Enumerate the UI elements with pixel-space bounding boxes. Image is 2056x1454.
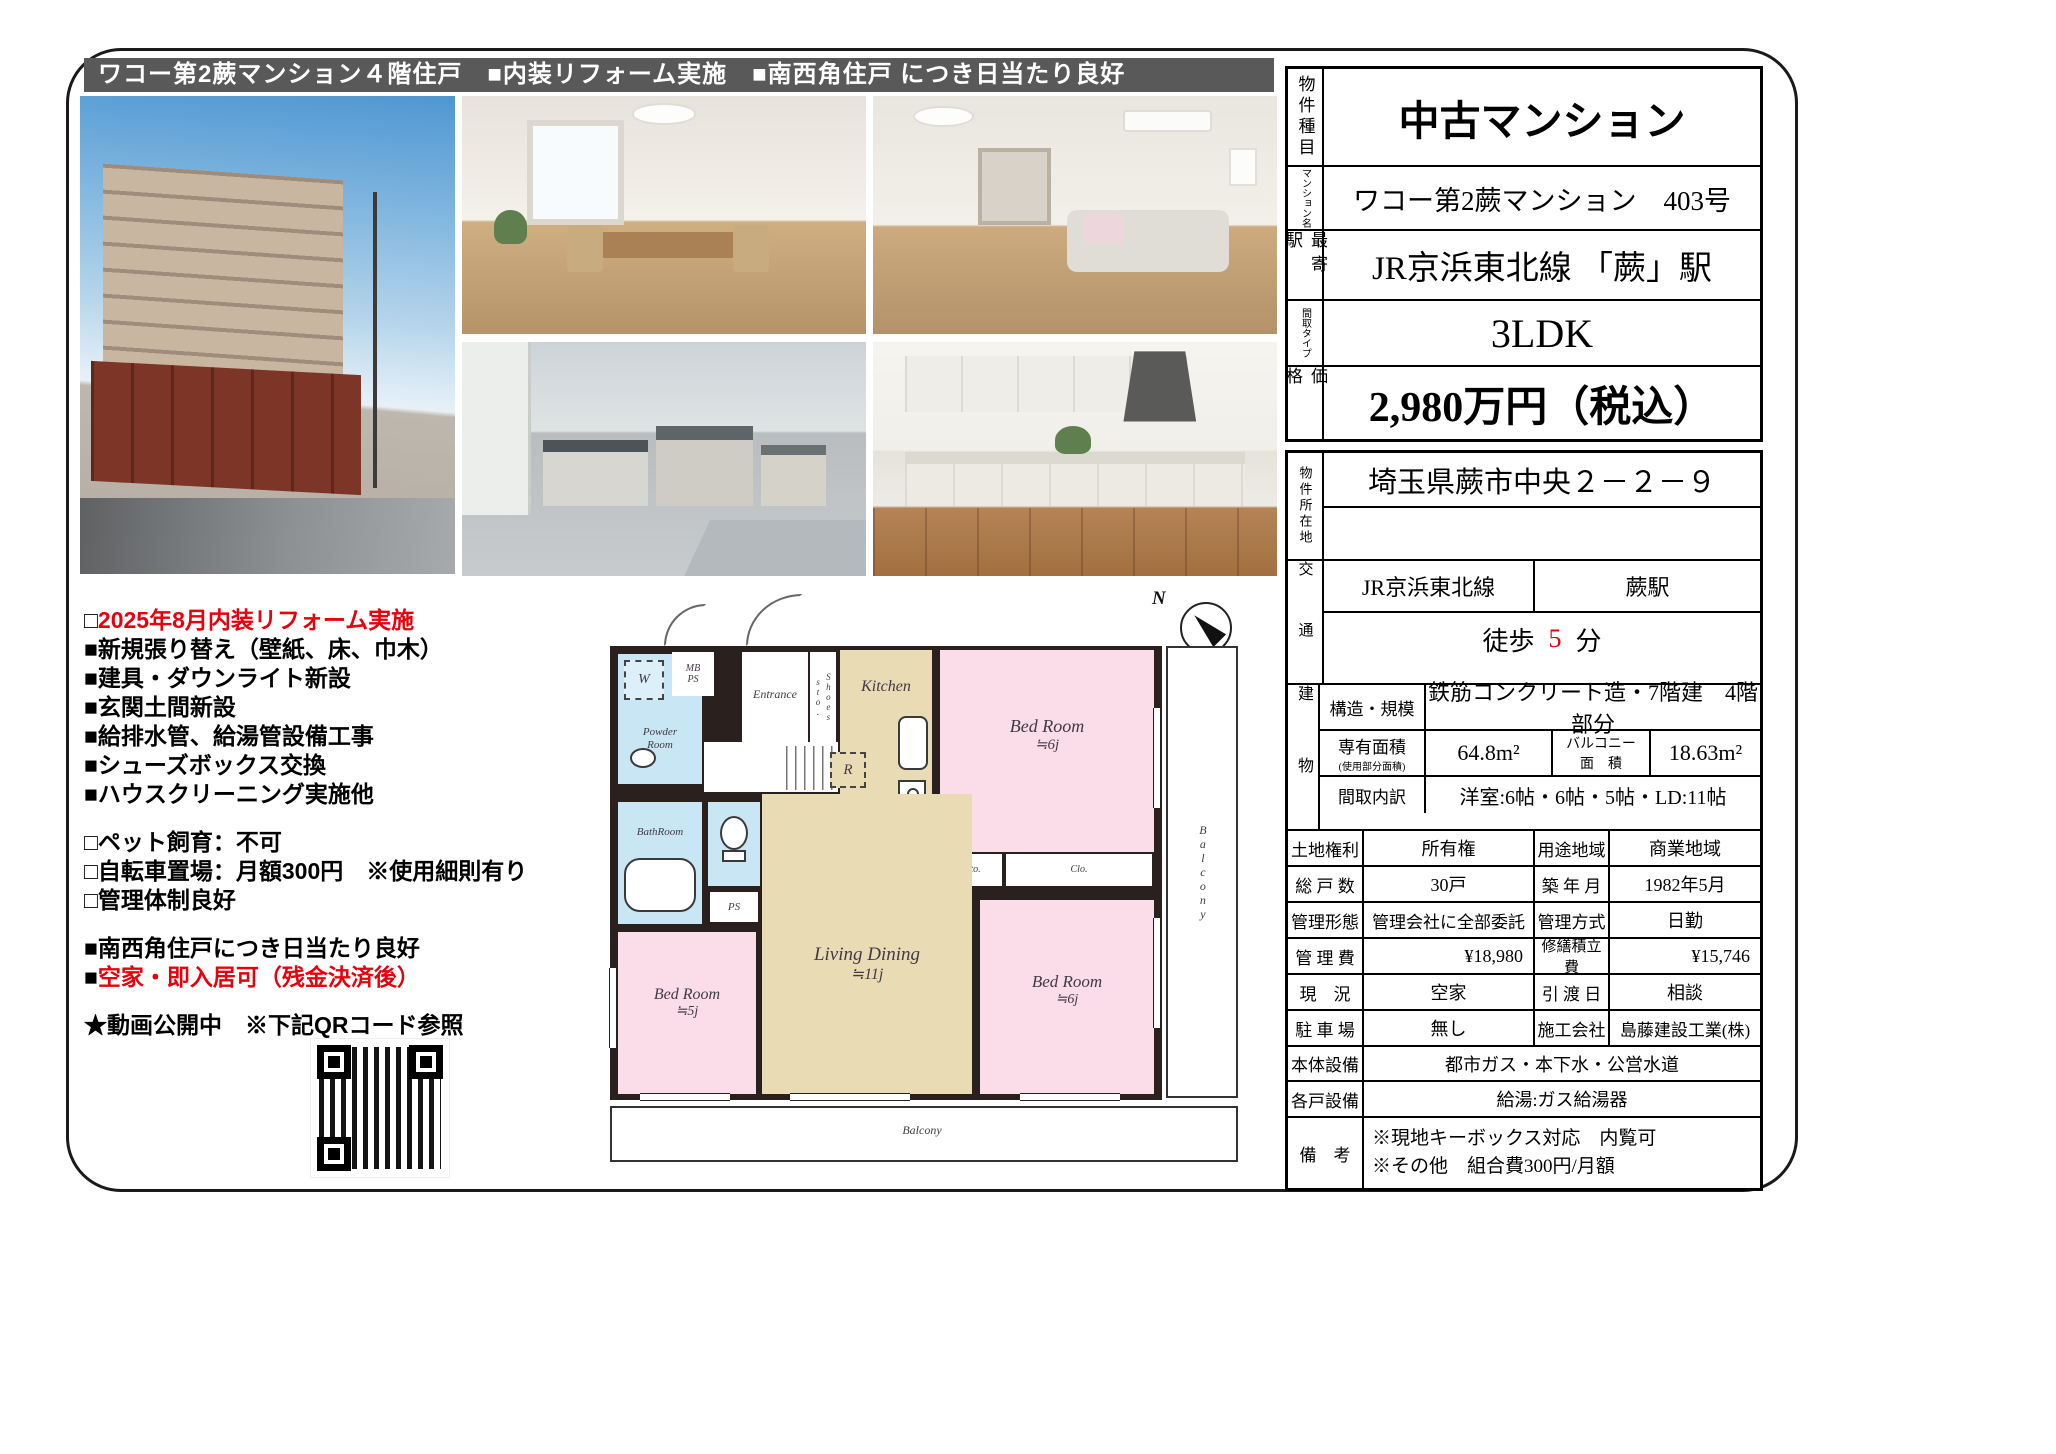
madori-label: 間取内訳 [1320, 777, 1426, 813]
spec-layout-label: 間取タイプ [1298, 308, 1313, 358]
reform-item: ■玄関土間新設 [84, 693, 574, 722]
spec-name-value: ワコー第2蕨マンション 403号 [1324, 167, 1760, 229]
cushion [1083, 215, 1123, 244]
spec-row-name: マンション名 ワコー第2蕨マンション 403号 [1288, 165, 1760, 229]
reform-note-group: □2025年8月内装リフォーム実施 ■新規張り替え（壁紙、床、巾木）■建具・ダウ… [84, 606, 574, 809]
madori-value: 洋室:6帖・6帖・5帖・LD:11帖 [1426, 777, 1760, 813]
contractor-value: 島藤建設工業(株) [1610, 1011, 1760, 1045]
qr-code [310, 1038, 450, 1178]
meter-pipe-space: MB PS [672, 652, 714, 696]
powder-label: Powder Room [618, 726, 702, 751]
bathtub-icon [624, 858, 696, 912]
bedroom3-label: Bed Room ≒6j [980, 972, 1154, 1008]
reform-items-list: ■新規張り替え（壁紙、床、巾木）■建具・ダウンライト新設■玄関土間新設■給排水管… [84, 635, 574, 809]
photo-building-exterior [80, 96, 455, 574]
ps-label: PS [728, 901, 740, 914]
equip-main-label: 本体設備 [1288, 1047, 1364, 1080]
access-station-value: 蕨駅 [1533, 561, 1760, 611]
walk-prefix: 徒歩 [1482, 621, 1534, 658]
window [790, 1093, 910, 1101]
house [543, 440, 648, 506]
area-label-cell: 専有面積 (使用部分面積) [1320, 731, 1426, 775]
spec-row-station: 最寄駅 JR京浜東北線 「蕨」駅 [1288, 229, 1760, 299]
reform-item: ■給排水管、給湯管設備工事 [84, 722, 574, 751]
reform-item: ■建具・ダウンライト新設 [84, 664, 574, 693]
mbps-label: MB PS [686, 663, 700, 686]
pipe-space: PS [710, 892, 758, 922]
spec-row-price: 価格 2,980万円（税込） [1288, 365, 1760, 439]
detail-row-equip-main: 本体設備 都市ガス・本下水・公営水道 [1288, 1045, 1760, 1080]
reform-title-text: 2025年8月内装リフォーム実施 [98, 607, 414, 633]
window [640, 1093, 730, 1101]
dining-window [527, 120, 624, 225]
utility-pole [373, 192, 377, 488]
units-label: 総 戸 数 [1288, 867, 1364, 901]
dining-chair [733, 225, 769, 273]
remarks-label: 備 考 [1288, 1118, 1364, 1188]
door-arc [746, 594, 802, 646]
qr-finder-icon [317, 1137, 351, 1171]
photo-dining-room [462, 96, 866, 334]
spec-row-layout: 間取タイプ 3LDK [1288, 299, 1760, 365]
qr-finder-icon [409, 1045, 443, 1079]
area-value: 64.8m² [1426, 731, 1551, 775]
washer-space: W [624, 660, 664, 700]
spec-station-value: JR京浜東北線 「蕨」駅 [1324, 231, 1760, 299]
rule-item: □ペット飼育：不可 [84, 828, 574, 857]
toilet-tank-icon [722, 850, 746, 862]
balcony-area-value: 18.63m² [1651, 731, 1760, 775]
structure-value: 鉄筋コンクリート造・7階建 4階部分 [1426, 685, 1760, 729]
window [1153, 708, 1161, 808]
access-label: 交通 [1295, 561, 1316, 683]
balcony-area-label-cell: バルコニー 面 積 [1551, 731, 1651, 775]
living-label: Living Dining ≒11j [762, 944, 972, 984]
balcony-south: Balcony [610, 1106, 1238, 1162]
north-label: N [1152, 588, 1166, 610]
house [761, 445, 826, 506]
sink-icon [630, 748, 656, 768]
plant [1055, 426, 1091, 454]
sales-notes: □2025年8月内装リフォーム実施 ■新規張り替え（壁紙、床、巾木）■建具・ダウ… [84, 606, 574, 1040]
handover-label: 引 渡 日 [1533, 975, 1610, 1009]
spec-station-label: 最寄駅 [1280, 231, 1330, 299]
building-storefront [91, 361, 361, 495]
rule-item: □自転車置場：月額300円 ※使用細則有り [84, 857, 574, 886]
flyer-title-banner: ワコー第2蕨マンション４階住戸 ■内装リフォーム実施 ■南西角住戸 につき日当た… [84, 58, 1274, 92]
spec-price-label-cell: 価格 [1288, 367, 1324, 439]
living-name: Living Dining [762, 944, 972, 966]
photo-living-room [873, 96, 1277, 334]
address-label-cell: 物件所在地 [1288, 453, 1324, 559]
mgmt-form-value: 管理会社に全部委託 [1364, 903, 1533, 937]
mgmt-fee-value: ¥18,980 [1364, 939, 1533, 973]
floor-lamp [1229, 148, 1257, 186]
detail-row-building: 建物 構造・規模 鉄筋コンクリート造・7階建 4階部分 専有面積 (使用部分面積… [1288, 683, 1760, 829]
living-size: ≒11j [762, 966, 972, 984]
lower-cabinets [905, 464, 1244, 506]
street-road [684, 520, 866, 576]
feature-items-list: ■南西角住戸につき日当たり良好 [84, 934, 574, 963]
detail-row-access: 交通 JR京浜東北線 蕨駅 徒歩5分 [1288, 559, 1760, 683]
address-label: 物件所在地 [1296, 466, 1315, 546]
mgmt-style-label: 管理方式 [1533, 903, 1610, 937]
video-note-line: ★動画公開中 ※下記QRコード参照 [84, 1011, 574, 1040]
washer-label: W [638, 672, 650, 688]
built-label: 築 年 月 [1533, 867, 1610, 901]
equip-unit-value: 給湯:ガス給湯器 [1364, 1082, 1760, 1116]
feature-item: ■南西角住戸につき日当たり良好 [84, 934, 574, 963]
window [1020, 1093, 1120, 1101]
detail-row-management: 管理形態 管理会社に全部委託 管理方式 日勤 [1288, 901, 1760, 937]
window [1153, 918, 1161, 1028]
detail-table: 物件所在地 埼玉県蕨市中央２－２－９ 交通 JR京浜東北線 蕨駅 徒歩5分 建物… [1285, 450, 1763, 1191]
floor-plan: N W MB PS Entrance Shoes sto. Powder Roo… [600, 588, 1260, 1180]
reform-item: ■ハウスクリーニング実施他 [84, 780, 574, 809]
entrance-label: Entrance [738, 688, 812, 702]
refrigerator-space: R [830, 752, 866, 788]
spec-price-label: 価格 [1280, 367, 1330, 439]
detail-row-parking: 駐 車 場 無し 施工会社 島藤建設工業(株) [1288, 1009, 1760, 1045]
area-sublabel: (使用部分面積) [1339, 758, 1406, 773]
bedroom2-label: Bed Room ≒5j [618, 986, 756, 1020]
bedroom1-name: Bed Room [940, 716, 1154, 737]
status-value: 空家 [1364, 975, 1533, 1009]
bullet-square-icon: ■ [84, 964, 98, 990]
closet-clo: Clo. [1006, 854, 1152, 886]
kitchen-sink-icon [898, 716, 928, 770]
units-value: 30戸 [1364, 867, 1533, 901]
shoes-storage: Shoes sto. [810, 652, 836, 742]
spec-type-label: 物件種目 [1293, 75, 1318, 159]
window [609, 968, 617, 1048]
street-road [80, 498, 455, 574]
repair-fund-label: 修繕積立費 [1533, 939, 1610, 973]
mgmt-style-value: 日勤 [1610, 903, 1760, 937]
balcony-area-label: バルコニー [1566, 733, 1636, 753]
walk-time: 徒歩5分 [1324, 613, 1760, 665]
detail-row-land: 土地権利 所有権 用途地域 商業地域 [1288, 829, 1760, 865]
bedroom3-name: Bed Room [980, 972, 1154, 992]
bedroom1-size: ≒6j [940, 737, 1154, 754]
feature-note-group: ■南西角住戸につき日当たり良好 ■空家・即入居可（残金決済後） [84, 934, 574, 992]
detail-row-fees: 管 理 費 ¥18,980 修繕積立費 ¥15,746 [1288, 937, 1760, 973]
reform-title-line: □2025年8月内装リフォーム実施 [84, 606, 574, 635]
detail-row-status: 現 況 空家 引 渡 日 相談 [1288, 973, 1760, 1009]
detail-row-remarks: 備 考 ※現地キーボックス対応 内覧可 ※その他 組合費300円/月額 [1288, 1116, 1760, 1188]
remarks-value: ※現地キーボックス対応 内覧可 ※その他 組合費300円/月額 [1364, 1118, 1760, 1188]
detail-row-units: 総 戸 数 30戸 築 年 月 1982年5月 [1288, 865, 1760, 901]
toilet-icon [720, 816, 748, 850]
spec-table: 物件種目 中古マンション マンション名 ワコー第2蕨マンション 403号 最寄駅… [1285, 66, 1763, 442]
land-label: 土地権利 [1288, 831, 1364, 865]
equip-unit-label: 各戸設備 [1288, 1082, 1364, 1116]
qr-finder-icon [317, 1045, 351, 1079]
walk-minutes: 5 [1549, 624, 1562, 654]
contractor-label: 施工会社 [1533, 1011, 1610, 1045]
shoes-label: Shoes sto. [813, 652, 834, 742]
door-arc [664, 604, 706, 646]
spec-price-value: 2,980万円（税込） [1324, 367, 1760, 439]
detail-row-equip-unit: 各戸設備 給湯:ガス給湯器 [1288, 1080, 1760, 1116]
handover-value: 相談 [1610, 975, 1760, 1009]
dining-table [591, 232, 745, 258]
balcony-area-label2: 面 積 [1580, 753, 1622, 773]
spec-layout-label-cell: 間取タイプ [1288, 301, 1324, 365]
reform-item: ■新規張り替え（壁紙、床、巾木） [84, 635, 574, 664]
genkan-steps [786, 746, 836, 790]
vacant-text: 空家・即入居可（残金決済後） [98, 964, 420, 990]
building-label: 建物 [1291, 685, 1315, 829]
photo-kitchen [873, 342, 1277, 576]
ceiling-light [632, 103, 697, 124]
mgmt-form-label: 管理形態 [1288, 903, 1364, 937]
plant [494, 210, 526, 243]
vacant-line: ■空家・即入居可（残金決済後） [84, 963, 574, 992]
spec-name-label-cell: マンション名 [1288, 167, 1324, 229]
bedroom2-name: Bed Room [618, 986, 756, 1004]
access-label-cell: 交通 [1288, 561, 1324, 683]
neighbor-building [462, 342, 531, 515]
spec-row-type: 物件種目 中古マンション [1288, 69, 1760, 165]
bathroom-label: BathRoom [616, 826, 704, 839]
dining-chair [567, 225, 603, 273]
equip-main-value: 都市ガス・本下水・公営水道 [1364, 1047, 1760, 1080]
repair-fund-value: ¥15,746 [1610, 939, 1760, 973]
parking-value: 無し [1364, 1011, 1533, 1045]
balcony-south-label: Balcony [842, 1124, 1002, 1138]
photo-balcony-view [462, 342, 866, 576]
zoning-label: 用途地域 [1533, 831, 1610, 865]
spec-type-label-cell: 物件種目 [1288, 69, 1324, 165]
building-label-cell: 建物 [1288, 685, 1320, 829]
balcony-east: Balcony [1166, 646, 1238, 1098]
spec-type-value: 中古マンション [1324, 69, 1760, 165]
walk-suffix: 分 [1576, 621, 1602, 658]
reform-item: ■シューズボックス交換 [84, 751, 574, 780]
spec-station-label-cell: 最寄駅 [1288, 231, 1324, 299]
structure-label: 構造・規模 [1320, 685, 1426, 729]
bullet-square-icon: □ [84, 607, 98, 633]
ceiling-light [913, 106, 974, 127]
bedroom3-size: ≒6j [980, 992, 1154, 1008]
rule-item: □管理体制良好 [84, 886, 574, 915]
spec-name-label: マンション名 [1298, 168, 1313, 228]
clo-label: Clo. [1071, 864, 1088, 876]
area-label: 専有面積 [1338, 733, 1406, 758]
refrigerator-label: R [843, 762, 852, 779]
rules-note-group: □ペット飼育：不可□自転車置場：月額300円 ※使用細則有り□管理体制良好 [84, 828, 574, 915]
address-value-2 [1324, 508, 1760, 559]
parking-label: 駐 車 場 [1288, 1011, 1364, 1045]
balcony-east-label: Balcony [1195, 823, 1209, 921]
zoning-value: 商業地域 [1610, 831, 1760, 865]
range-hood [1123, 351, 1196, 421]
land-value: 所有権 [1364, 831, 1533, 865]
remarks-line1: ※現地キーボックス対応 内覧可 [1372, 1125, 1760, 1153]
house [656, 426, 753, 506]
built-value: 1982年5月 [1610, 867, 1760, 901]
balcony-doorway [978, 148, 1051, 224]
wood-floor [873, 508, 1277, 576]
bedroom1-label: Bed Room ≒6j [940, 716, 1154, 754]
bedroom2-size: ≒5j [618, 1004, 756, 1020]
detail-row-address: 物件所在地 埼玉県蕨市中央２－２－９ [1288, 453, 1760, 559]
air-conditioner [1123, 110, 1212, 131]
address-value: 埼玉県蕨市中央２－２－９ [1324, 453, 1760, 506]
status-label: 現 況 [1288, 975, 1364, 1009]
remarks-line2: ※その他 組合費300円/月額 [1372, 1153, 1760, 1181]
kitchen-label: Kitchen [838, 678, 934, 696]
mgmt-fee-label: 管 理 費 [1288, 939, 1364, 973]
access-line-value: JR京浜東北線 [1324, 561, 1533, 611]
spec-layout-value: 3LDK [1324, 301, 1760, 365]
